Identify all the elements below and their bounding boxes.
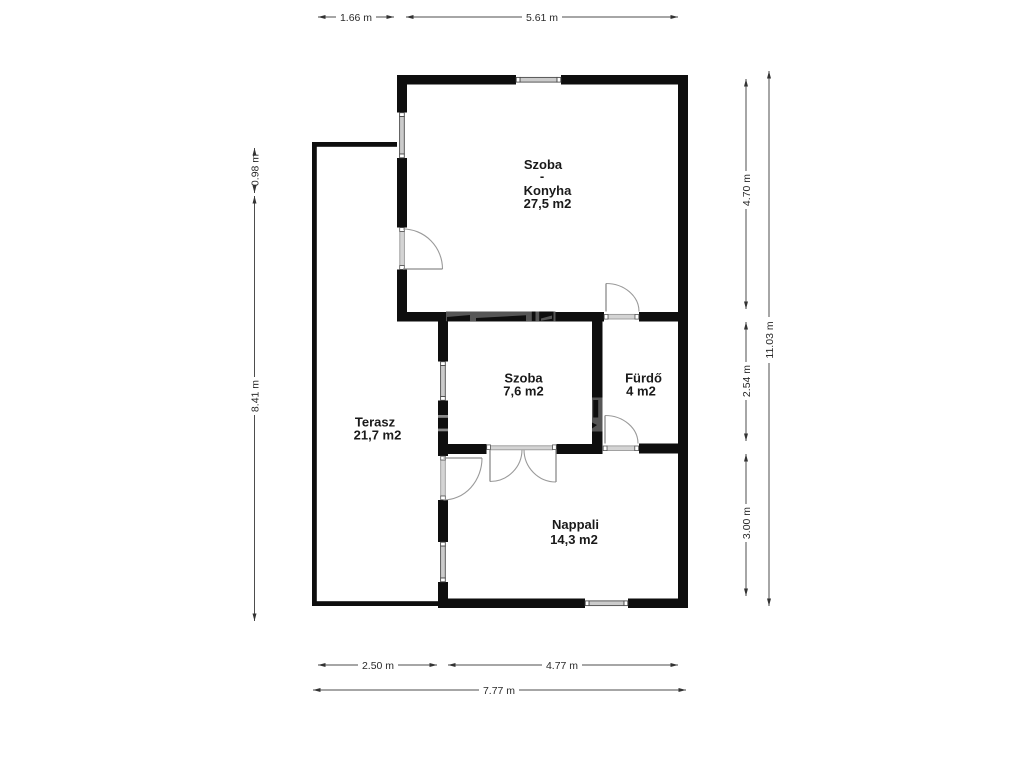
svg-text:8.41 m: 8.41 m — [250, 380, 262, 412]
svg-text:2.50 m: 2.50 m — [362, 660, 394, 672]
svg-text:2.54 m: 2.54 m — [741, 365, 753, 397]
svg-text:5.61 m: 5.61 m — [526, 12, 558, 24]
svg-text:11.03 m: 11.03 m — [764, 321, 776, 358]
svg-text:0.98 m: 0.98 m — [250, 154, 262, 186]
svg-text:Nappali: Nappali — [552, 517, 599, 532]
svg-text:3.00 m: 3.00 m — [741, 507, 753, 539]
svg-text:7,6 m2: 7,6 m2 — [503, 384, 543, 399]
svg-text:4.77 m: 4.77 m — [546, 660, 578, 672]
svg-text:-: - — [540, 169, 544, 184]
svg-text:7.77 m: 7.77 m — [483, 685, 515, 697]
svg-text:1.66 m: 1.66 m — [340, 12, 372, 24]
svg-text:4 m2: 4 m2 — [626, 384, 656, 399]
svg-text:27,5 m2: 27,5 m2 — [524, 196, 572, 211]
svg-text:4.70 m: 4.70 m — [741, 174, 753, 206]
svg-text:21,7 m2: 21,7 m2 — [354, 428, 402, 443]
svg-text:14,3 m2: 14,3 m2 — [550, 532, 598, 547]
